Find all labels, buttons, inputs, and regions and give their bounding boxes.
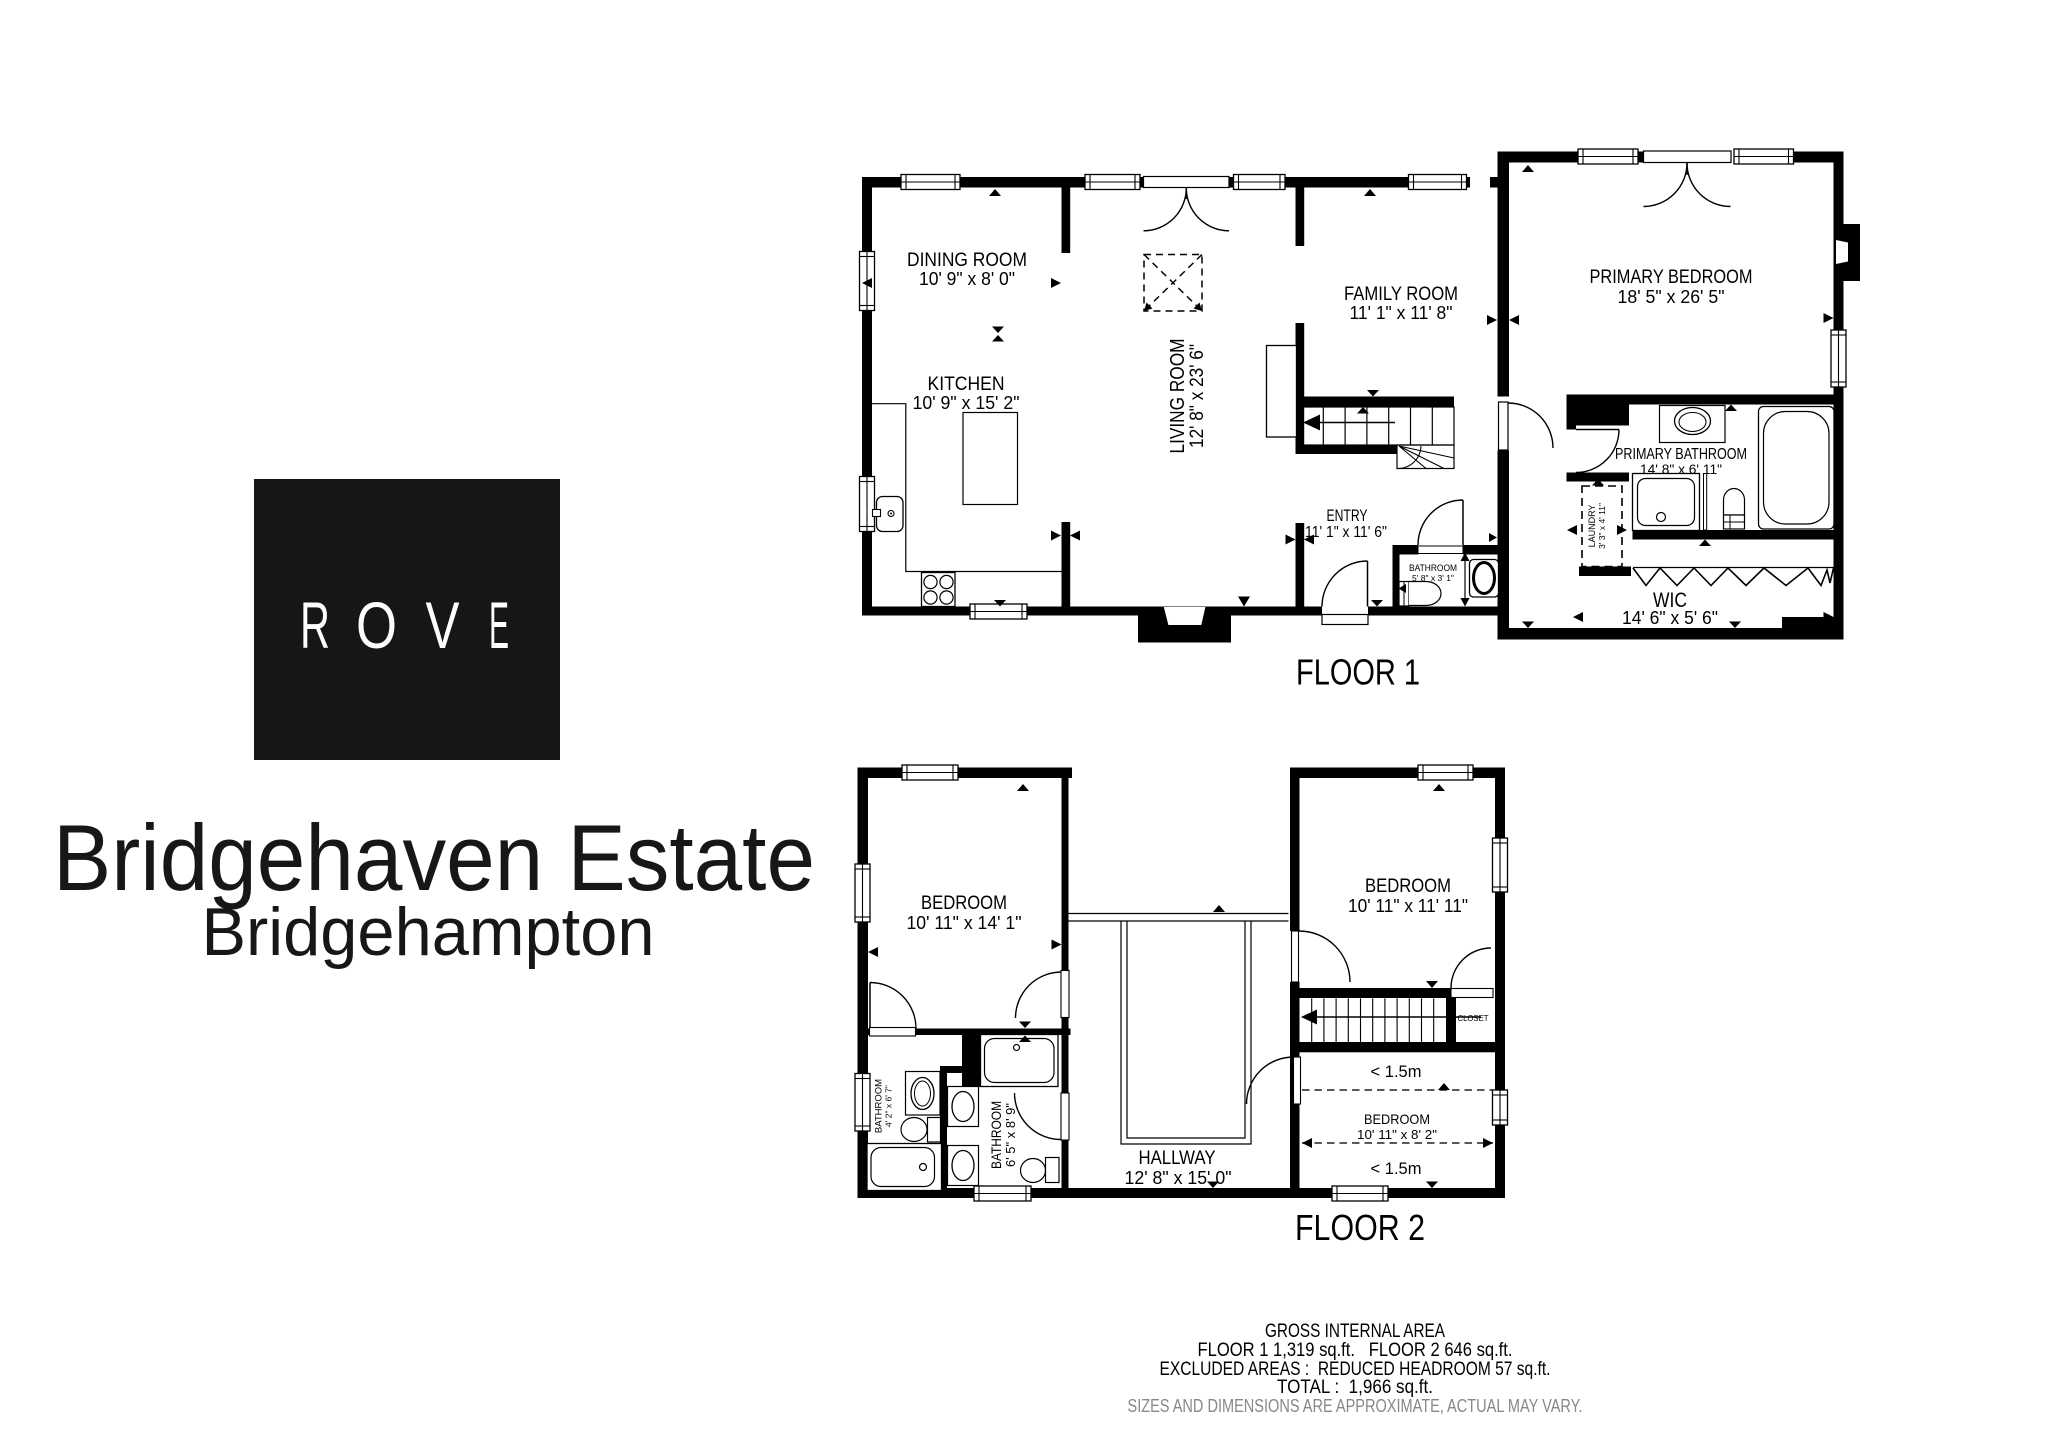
svg-text:14' 6" x 5' 6": 14' 6" x 5' 6" <box>1622 608 1718 628</box>
svg-text:FLOOR 1: FLOOR 1 <box>1296 652 1420 693</box>
svg-text:10' 9" x 8' 0": 10' 9" x 8' 0" <box>919 269 1015 289</box>
svg-text:5' 8" x 3' 1": 5' 8" x 3' 1" <box>1412 573 1454 583</box>
svg-text:18' 5" x 26' 5": 18' 5" x 26' 5" <box>1618 287 1725 307</box>
svg-text:FLOOR 2: FLOOR 2 <box>1295 1207 1425 1248</box>
svg-text:4' 2" x 6' 7": 4' 2" x 6' 7" <box>884 1085 894 1127</box>
svg-text:12' 8" x 15' 0": 12' 8" x 15' 0" <box>1125 1168 1232 1188</box>
svg-text:BATHROOM: BATHROOM <box>989 1101 1004 1169</box>
svg-text:FLOOR 1 1,319 sq.ft. FLOOR 2: FLOOR 1 1,319 sq.ft. FLOOR 2 646 sq.ft. <box>1198 1340 1513 1361</box>
svg-text:6' 5" x 8' 9": 6' 5" x 8' 9" <box>1004 1103 1018 1167</box>
svg-text:GROSS INTERNAL AREA: GROSS INTERNAL AREA <box>1265 1321 1445 1342</box>
svg-text:10' 11" x 14' 1": 10' 11" x 14' 1" <box>907 913 1022 933</box>
svg-text:FAMILY ROOM: FAMILY ROOM <box>1344 283 1458 305</box>
svg-text:10' 9" x 15' 2": 10' 9" x 15' 2" <box>913 393 1020 413</box>
svg-text:10' 11" x 11' 11": 10' 11" x 11' 11" <box>1348 896 1468 916</box>
svg-text:BEDROOM: BEDROOM <box>1364 1111 1430 1127</box>
svg-text:BEDROOM: BEDROOM <box>921 892 1007 914</box>
svg-text:12' 8" x 23' 6": 12' 8" x 23' 6" <box>1187 344 1208 448</box>
svg-text:11' 1" x 11' 6": 11' 1" x 11' 6" <box>1305 524 1387 541</box>
svg-text:< 1.5m: < 1.5m <box>1371 1063 1422 1081</box>
svg-text:O: O <box>356 588 397 662</box>
svg-text:CLOSET: CLOSET <box>1458 1014 1489 1023</box>
svg-text:R: R <box>300 588 330 662</box>
svg-text:E: E <box>489 588 509 662</box>
svg-text:DINING ROOM: DINING ROOM <box>907 249 1027 271</box>
svg-text:HALLWAY: HALLWAY <box>1139 1147 1216 1169</box>
svg-text:14' 8" x 6' 11": 14' 8" x 6' 11" <box>1640 461 1722 477</box>
svg-text:10' 11" x 8' 2": 10' 11" x 8' 2" <box>1357 1128 1437 1142</box>
svg-text:3' 3" x 4' 11": 3' 3" x 4' 11" <box>1597 503 1607 549</box>
svg-text:ENTRY: ENTRY <box>1327 506 1368 525</box>
svg-text:11' 1" x 11' 8": 11' 1" x 11' 8" <box>1350 303 1453 323</box>
svg-text:KITCHEN: KITCHEN <box>928 373 1005 395</box>
svg-text:Bridgehampton: Bridgehampton <box>202 895 655 970</box>
svg-text:< 1.5m: < 1.5m <box>1371 1160 1422 1178</box>
svg-text:SIZES AND DIMENSIONS ARE APPRO: SIZES AND DIMENSIONS ARE APPROXIMATE, AC… <box>1128 1395 1583 1416</box>
svg-text:LAUNDRY: LAUNDRY <box>1587 505 1597 548</box>
svg-text:LIVING ROOM: LIVING ROOM <box>1167 339 1189 454</box>
svg-text:PRIMARY BEDROOM: PRIMARY BEDROOM <box>1590 266 1753 288</box>
svg-text:V: V <box>426 588 460 662</box>
svg-text:BEDROOM: BEDROOM <box>1365 875 1451 897</box>
